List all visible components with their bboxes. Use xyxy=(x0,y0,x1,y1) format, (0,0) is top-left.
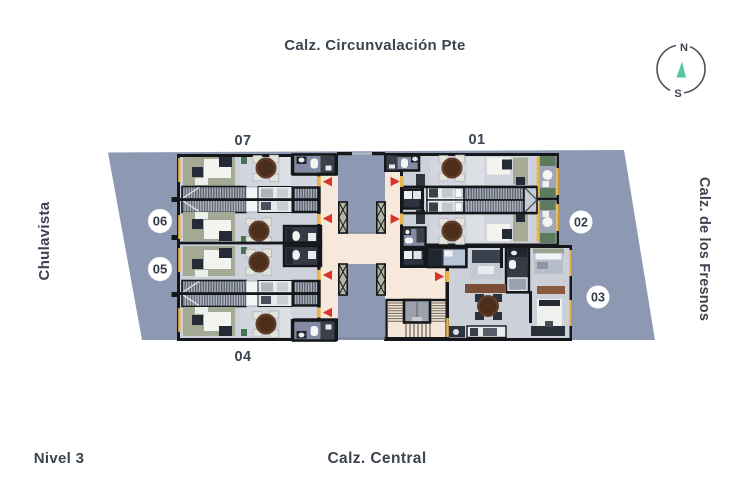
svg-text:06: 06 xyxy=(153,214,167,229)
svg-text:02: 02 xyxy=(574,215,588,229)
svg-text:04: 04 xyxy=(235,349,252,365)
svg-text:05: 05 xyxy=(153,262,167,277)
svg-text:N: N xyxy=(680,42,688,54)
svg-text:Nivel 3: Nivel 3 xyxy=(34,450,84,467)
svg-text:S: S xyxy=(674,88,681,100)
svg-text:03: 03 xyxy=(591,290,605,304)
svg-text:Calz. Central: Calz. Central xyxy=(327,450,426,467)
svg-text:Chulavista: Chulavista xyxy=(36,201,53,280)
svg-text:07: 07 xyxy=(235,133,252,149)
svg-text:Calz. Circunvalación Pte: Calz. Circunvalación Pte xyxy=(284,37,465,54)
svg-text:Calz. de los Fresnos: Calz. de los Fresnos xyxy=(696,177,712,321)
svg-text:01: 01 xyxy=(469,132,486,148)
